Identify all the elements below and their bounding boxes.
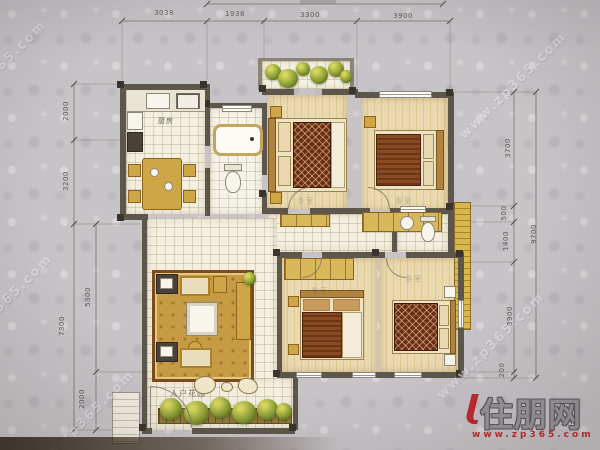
nightstand [288, 344, 299, 355]
toilet-tank [224, 164, 242, 171]
bed-sheet [331, 122, 345, 188]
dim-right-inner-5: 200 [498, 350, 506, 390]
nightstand [270, 106, 282, 118]
bed-pillow [439, 305, 449, 326]
dim-left-outer-2: 3200 [62, 161, 70, 201]
bath-sink [400, 216, 414, 230]
nightstand [288, 296, 299, 307]
wall [205, 84, 210, 146]
bed-pillow [423, 134, 434, 159]
wall-pier [456, 250, 463, 257]
bed-pillow [278, 156, 291, 186]
armchair [213, 276, 227, 293]
wall-pier [259, 190, 266, 197]
bathtub-drain [250, 137, 254, 141]
window [352, 372, 376, 378]
wall-pier [200, 81, 207, 88]
plant [232, 401, 256, 424]
kitchen-stove [176, 93, 200, 109]
kitchen-label: 厨房 [158, 116, 174, 126]
logo-text: 住朋网 [480, 388, 582, 436]
wall-pier [289, 424, 296, 431]
dim-right-inner-1: 3700 [504, 128, 512, 168]
plant [296, 62, 310, 76]
site-logo: 住朋网 www.zp365.com [468, 388, 598, 444]
wall-pier [446, 203, 453, 210]
bed-headboard [436, 130, 444, 190]
dining-chair [183, 164, 196, 177]
wall [406, 252, 454, 258]
plant [243, 272, 256, 285]
armchair-cushion [160, 346, 173, 357]
wall-pier [117, 81, 124, 88]
bed-cover [376, 134, 421, 186]
sofa [180, 276, 210, 296]
plant [340, 70, 352, 83]
plant [276, 403, 292, 420]
dim-top-4: 3900 [380, 12, 426, 20]
window [458, 300, 464, 328]
wall [120, 84, 126, 220]
dim-left-outer-3: 7300 [58, 306, 66, 346]
entry-door-leaf [150, 386, 151, 428]
floorplan-photo: 3038 1938 3300 3900 2000 3200 7300 5300 … [0, 0, 600, 450]
wall [205, 168, 210, 216]
window [394, 372, 422, 378]
logo-url: www.zp365.com [472, 430, 594, 440]
bed-cover [394, 303, 438, 351]
wall-pier [349, 87, 356, 94]
wall [142, 218, 147, 430]
chaise-sofa [236, 282, 251, 340]
bedroom-label: 卧室 [396, 196, 412, 206]
hall-cabinet [280, 214, 330, 227]
bedroom-label: 卧室 [406, 274, 422, 284]
wall [355, 92, 381, 98]
dim-top-3: 3300 [287, 11, 333, 19]
toilet [421, 222, 435, 242]
bed-cover [302, 312, 342, 358]
bed-pillow [303, 299, 330, 311]
plant [310, 66, 328, 84]
plant [257, 399, 278, 420]
stepping-stone [221, 382, 233, 392]
bedroom-label: 卧室 [312, 286, 328, 296]
sofa [180, 348, 212, 368]
kitchen-sink [146, 93, 170, 109]
wall [293, 378, 298, 430]
kitchen-fridge [127, 112, 143, 130]
wall-pier [273, 370, 280, 377]
nightstand [270, 192, 282, 204]
dim-left-inner-1: 5300 [84, 277, 92, 317]
window [222, 105, 252, 112]
wall-pier [446, 89, 453, 96]
wall-pier [139, 424, 146, 431]
bed-headboard [450, 300, 456, 354]
bathtub [213, 124, 263, 156]
bed-pillow [278, 122, 291, 152]
bed-pillow [439, 328, 449, 349]
dim-left-outer-1: 2000 [62, 91, 70, 131]
dim-top-1: 3038 [141, 9, 187, 17]
wall [262, 89, 294, 95]
dim-right-inner-3: 1400 [502, 221, 510, 261]
dining-chair [128, 190, 141, 203]
dining-chair [128, 164, 141, 177]
wall [448, 92, 454, 206]
dining-table [142, 158, 182, 210]
bed-pillow [333, 299, 360, 311]
nightstand [444, 354, 456, 366]
tv-screen [160, 278, 173, 289]
wall-pier [259, 85, 266, 92]
balcony-wall [258, 58, 354, 61]
wall [277, 252, 282, 378]
wall-pier [273, 249, 280, 256]
coffee-table [186, 302, 218, 336]
bed-headboard [300, 290, 364, 298]
kitchen-cabinet [127, 132, 143, 152]
bed-pillow [423, 161, 434, 186]
wall-pier [372, 249, 379, 256]
toilet [225, 171, 241, 193]
window [296, 372, 322, 378]
window [379, 91, 432, 98]
dim-right-outer: 9700 [530, 214, 538, 254]
nightstand [364, 116, 376, 128]
dim-top-2: 1938 [212, 10, 258, 18]
nightstand [444, 286, 456, 298]
bed-sheet [342, 312, 362, 358]
dining-plate [150, 168, 159, 177]
dining-plate [164, 182, 173, 191]
plant [278, 69, 298, 88]
wall-pier [117, 214, 124, 221]
wall [192, 428, 295, 434]
bed-headboard [268, 118, 276, 192]
dining-chair [183, 190, 196, 203]
plant [210, 397, 231, 418]
bed-cover [293, 122, 331, 188]
